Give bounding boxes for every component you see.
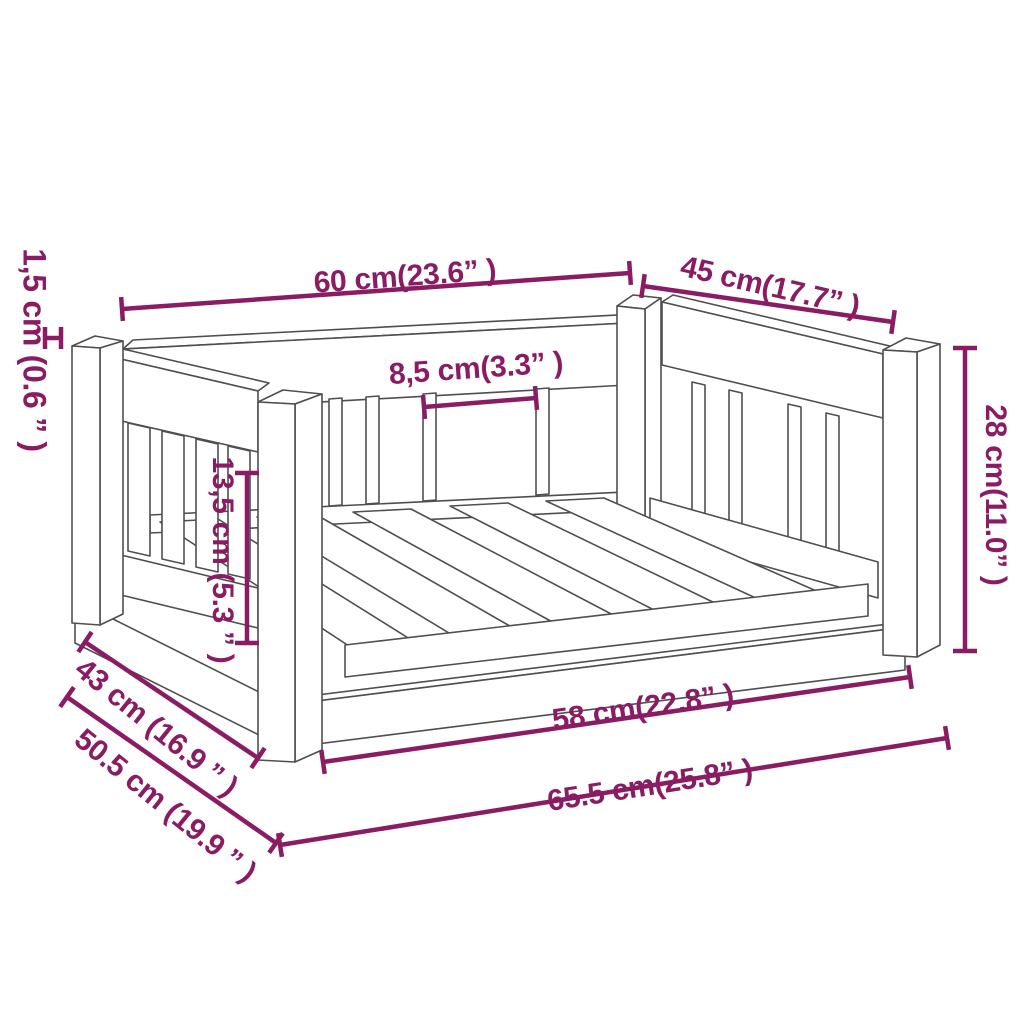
right-post-side bbox=[917, 344, 940, 657]
back-left-post-side bbox=[100, 341, 123, 625]
back-slat bbox=[366, 396, 379, 504]
dog-bed-wireframe bbox=[0, 0, 1024, 1024]
product-dimension-diagram: 1,5 cm (0.6 ” ) 60 cm(23.6” ) 45 cm(17.7… bbox=[0, 0, 1024, 1024]
front-post-side bbox=[295, 394, 322, 762]
dimension-label-board-thickness: 1,5 cm (0.6 ” ) bbox=[16, 248, 53, 452]
back-slat bbox=[329, 398, 342, 506]
dimension-label-overall-height: 28 cm(11.0” ) bbox=[978, 404, 1012, 585]
right-post-front bbox=[883, 350, 917, 657]
left-slat bbox=[128, 423, 150, 556]
back-left-post-front bbox=[72, 346, 100, 625]
corner-post-side bbox=[645, 298, 661, 520]
corner-post bbox=[617, 295, 661, 526]
dimension-label-inner-height: 13,5 cm (5.3 ” ) bbox=[205, 457, 239, 664]
front-post-front bbox=[258, 402, 295, 762]
right-slat bbox=[692, 382, 705, 532]
corner-post-front bbox=[617, 306, 645, 526]
left-slat bbox=[162, 431, 184, 564]
